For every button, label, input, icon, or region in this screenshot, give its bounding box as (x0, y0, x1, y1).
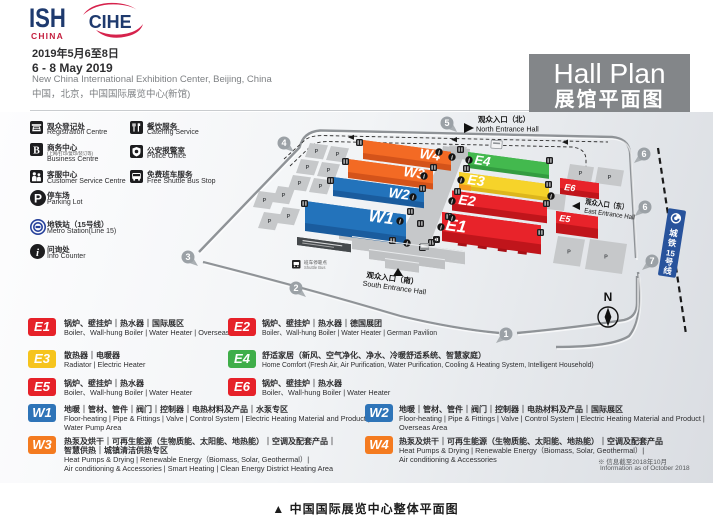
svg-text:观众入口（北）: 观众入口（北） (478, 114, 530, 124)
svg-text:P: P (608, 175, 612, 181)
svg-text:P: P (298, 181, 302, 187)
svg-text:6: 6 (641, 149, 646, 159)
svg-text:P: P (579, 171, 583, 177)
svg-text:North Entrance Hall: North Entrance Hall (476, 125, 539, 134)
svg-text:3: 3 (185, 252, 190, 262)
svg-text:E3: E3 (467, 171, 486, 189)
svg-text:P: P (306, 165, 310, 171)
svg-text:P: P (287, 214, 291, 220)
svg-text:P: P (268, 219, 272, 225)
svg-text:1: 1 (503, 329, 508, 339)
svg-text:4: 4 (281, 138, 286, 148)
svg-text:P: P (604, 255, 608, 261)
svg-text:E4: E4 (474, 152, 493, 169)
svg-text:W1: W1 (367, 206, 395, 228)
svg-text:P: P (336, 152, 340, 158)
svg-text:P: P (567, 249, 571, 255)
svg-text:P: P (263, 198, 267, 204)
svg-text:P: P (319, 184, 323, 190)
svg-text:P: P (282, 193, 286, 199)
svg-text:6: 6 (642, 202, 647, 212)
svg-text:7: 7 (649, 256, 654, 266)
svg-text:5: 5 (444, 118, 449, 128)
svg-text:W2: W2 (388, 184, 411, 203)
svg-text:P: P (315, 149, 319, 155)
svg-text:N: N (604, 290, 613, 304)
svg-text:2: 2 (293, 283, 298, 293)
svg-text:Shuttle Bus: Shuttle Bus (304, 265, 325, 270)
svg-text:P: P (327, 168, 331, 174)
